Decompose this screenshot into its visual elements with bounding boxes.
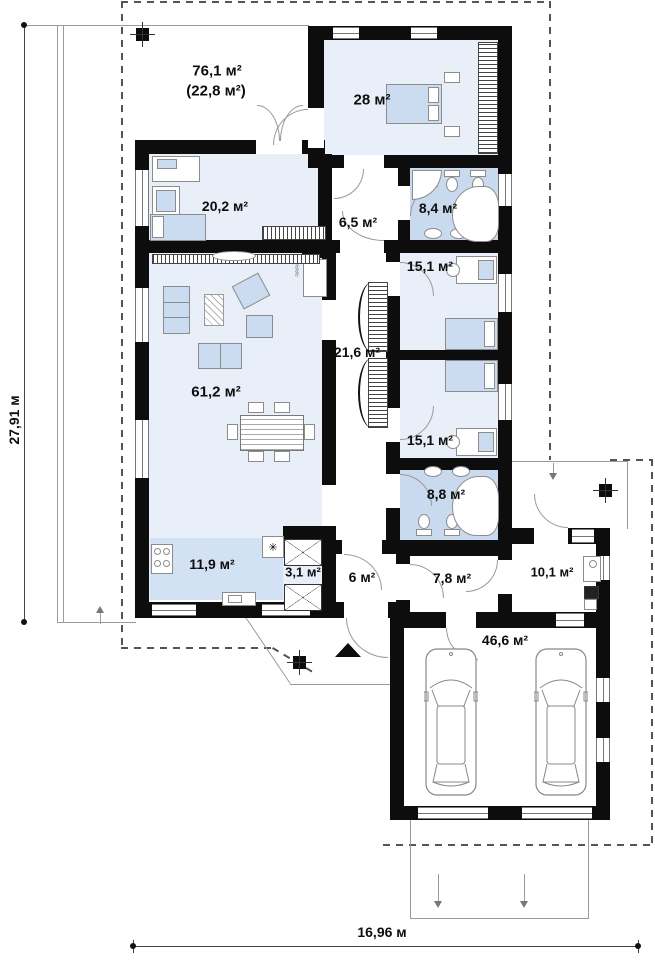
column-icon (599, 484, 612, 497)
column-icon (293, 656, 306, 669)
garage-door (522, 807, 592, 819)
window (596, 738, 610, 762)
window (333, 27, 359, 39)
nightstand-icon (444, 72, 460, 83)
boiler-symbol: ✳ (268, 542, 277, 554)
window (596, 678, 610, 702)
pillow-icon (484, 363, 495, 389)
roof-outline-right (549, 1, 551, 460)
toilet-icon (446, 177, 458, 192)
front-porch-bottom (290, 684, 397, 685)
pillow-icon (428, 105, 439, 121)
toilet-icon (444, 170, 460, 177)
roof-outline-top (121, 1, 550, 3)
toilet-icon (470, 170, 486, 177)
dimension-label-bottom: 16,96 м (357, 924, 406, 940)
chair-icon (274, 451, 290, 462)
door-opening (534, 528, 568, 544)
roof-outline-garage-right (651, 459, 653, 845)
dimension-line-bottom (133, 946, 639, 947)
room-area-label-bathroom-2: 8,8 м² (427, 486, 465, 502)
driveway-edge (588, 820, 589, 919)
car-icon (534, 646, 588, 798)
room-area-label-entry: 6 м² (349, 569, 376, 585)
floor-plan: ≈≈≈ (0, 0, 655, 966)
porch-arrow-icon (549, 473, 557, 480)
door-opening (342, 540, 382, 554)
monitor-icon (478, 432, 494, 452)
dimension-line-left (24, 25, 25, 622)
window (135, 420, 149, 478)
door-swing (273, 109, 308, 145)
wardrobe-icon (262, 226, 326, 240)
window (556, 613, 584, 627)
window (135, 170, 149, 226)
room-area-label-living: 61,2 м² (191, 384, 240, 401)
monitor-icon (478, 260, 494, 280)
column-icon (136, 28, 149, 41)
closet-front-icon (358, 282, 372, 352)
driveway-arrow-icon (434, 901, 442, 908)
terrace-edge-left-inner (63, 25, 64, 623)
room-area-label-bedroom-2: 15,1 м² (407, 258, 453, 274)
chair-icon (248, 451, 264, 462)
window (411, 27, 437, 39)
bathtub-icon (452, 476, 499, 536)
room-area-label-hallway: 21,6 м² (334, 344, 380, 360)
chair-icon (274, 402, 290, 413)
entrance-marker-icon (335, 643, 361, 657)
chair-icon (227, 424, 238, 440)
room-area-label-bathroom-1: 8,4 м² (419, 200, 457, 216)
roof-outline-left (121, 1, 123, 648)
toilet-icon (418, 514, 430, 529)
sink-icon (424, 228, 442, 239)
window (152, 604, 196, 616)
printer-icon (157, 159, 177, 169)
dimension-endpoint (130, 943, 136, 949)
room-area-label-terrace: 76,1 м² (192, 63, 241, 80)
door-opening (322, 300, 336, 340)
room-area-label-terrace-note: (22,8 м²) (186, 83, 245, 100)
pillow-icon (428, 87, 439, 103)
chair-icon (304, 424, 315, 440)
door-opening (446, 612, 476, 628)
room-area-label-utility: 10,1 м² (531, 565, 574, 580)
room-area-label-bedroom-3: 15,1 м² (407, 432, 453, 448)
wall (322, 526, 336, 614)
door-opening (386, 474, 400, 508)
wall (308, 155, 512, 168)
step-arrow-icon (96, 606, 104, 613)
door-opening (396, 564, 410, 600)
door-opening (344, 602, 388, 618)
monitor-icon (156, 190, 176, 212)
rear-porch-right (627, 461, 628, 529)
door-opening (340, 240, 384, 253)
driveway-edge (410, 918, 589, 919)
garage-door (418, 807, 488, 819)
dining-table-icon (240, 415, 304, 451)
burner-icon (163, 548, 170, 555)
dimension-endpoint (635, 943, 641, 949)
sofa-icon (163, 286, 190, 334)
shelving-icon (284, 539, 322, 566)
kitchen-sink-basin (228, 595, 242, 603)
roof-outline-garage-bottom (383, 844, 652, 846)
terrace-edge-bottom (57, 622, 136, 623)
driveway-arrow-icon (520, 901, 528, 908)
window (135, 288, 149, 342)
door-opening (344, 155, 384, 168)
fireplace-flame-lines: ≈≈≈ (292, 264, 302, 276)
sofa-icon (198, 343, 242, 369)
pillow-icon (484, 321, 495, 347)
dimension-label-left: 27,91 м (6, 395, 22, 444)
room-area-label-pantry: 3,1 м² (285, 565, 321, 580)
car-icon (424, 646, 478, 798)
driveway-arrow-icon (438, 874, 439, 902)
burner-icon (163, 560, 170, 567)
rear-porch-top (512, 461, 628, 462)
toilet-icon (444, 529, 460, 536)
window (498, 274, 512, 312)
wall (400, 350, 512, 360)
door-opening (386, 262, 400, 296)
terrace-edge-left-outer (57, 25, 58, 623)
chair-icon (248, 402, 264, 413)
window (572, 529, 594, 543)
equipment-icon (584, 599, 597, 610)
door-opening (398, 186, 410, 220)
burner-icon (154, 548, 161, 555)
door-opening (498, 560, 512, 594)
bathtub-icon (452, 186, 499, 242)
driveway-arrow-icon (524, 874, 525, 902)
dimension-endpoint (21, 22, 27, 28)
burner-icon (154, 560, 161, 567)
nightstand-icon (444, 126, 460, 137)
armchair-icon (246, 315, 273, 338)
boiler-icon: ✳ (262, 536, 284, 558)
room-area-label-corridor: 6,5 м² (339, 214, 377, 230)
window (498, 384, 512, 420)
terrace-edge-top (24, 25, 309, 26)
equipment-icon (584, 586, 599, 599)
wardrobe-icon (478, 42, 498, 154)
door-opening (386, 408, 400, 442)
tv-icon (212, 251, 256, 261)
room-area-label-garage: 46,6 м² (482, 632, 528, 648)
fireplace-firebox (303, 259, 327, 297)
wall (390, 612, 404, 820)
front-porch-diagonal (245, 617, 291, 684)
room-area-label-study: 20,2 м² (202, 198, 248, 214)
toilet-icon (416, 529, 432, 536)
pillow-icon (152, 216, 164, 238)
closet-front-icon (358, 358, 372, 428)
roof-outline-bottom-left (121, 647, 273, 649)
door-opening (308, 108, 324, 148)
sink-icon (424, 466, 442, 477)
room-area-label-bedroom-main: 28 м² (354, 92, 391, 109)
wall (596, 612, 610, 820)
wall (410, 540, 512, 556)
shelving-icon (284, 584, 322, 611)
sink-icon (452, 466, 470, 477)
window (498, 174, 512, 206)
door-swing (334, 169, 364, 199)
room-area-label-kitchen: 11,9 м² (189, 556, 234, 572)
room-area-label-hall: 7,8 м² (433, 570, 471, 586)
driveway-edge (410, 820, 411, 919)
rug-icon (204, 294, 224, 326)
dimension-endpoint (21, 619, 27, 625)
boiler-dial-icon (589, 560, 597, 568)
